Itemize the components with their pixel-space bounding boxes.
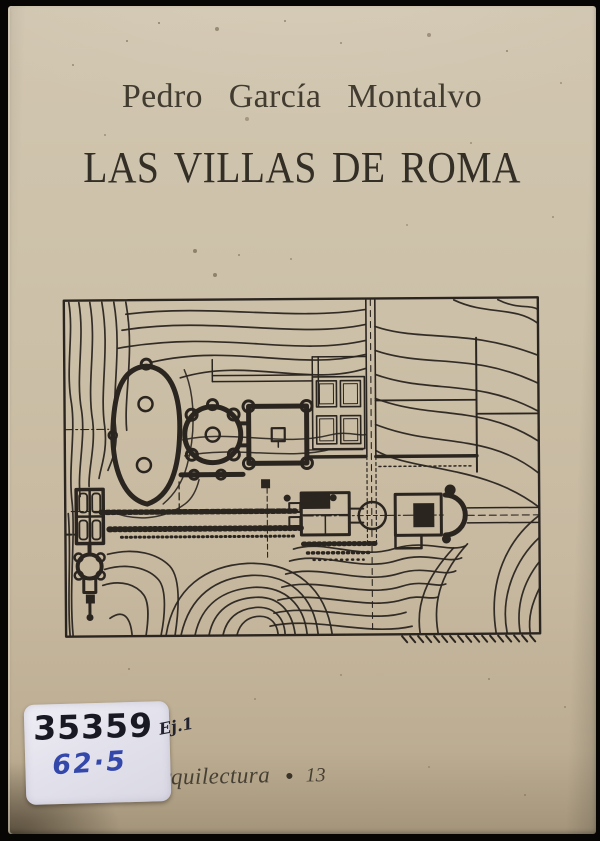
book-cover: Pedro García Montalvo LAS VILLAS DE ROMA <box>8 6 596 834</box>
series-number: 13 <box>305 764 325 787</box>
foxing-speckles <box>8 6 10 8</box>
accession-number: 35359 <box>33 708 153 744</box>
author-name: Pedro García Montalvo <box>8 78 596 115</box>
copy-mark: Ej.1 <box>157 714 195 739</box>
series-line: Arquilectura ● 13 <box>148 761 326 795</box>
shelf-mark: 62·5 <box>52 745 171 779</box>
book-title: LAS VILLAS DE ROMA <box>8 144 596 192</box>
site-plan-drawing <box>62 295 542 649</box>
book-cover-photo: Pedro García Montalvo LAS VILLAS DE ROMA <box>0 0 600 841</box>
book-title-text: LAS VILLAS DE ROMA <box>83 144 521 192</box>
library-label: 35359 Ej.1 62·5 <box>24 701 172 805</box>
library-label-row: 35359 Ej.1 <box>24 701 170 745</box>
bullet-icon: ● <box>285 769 294 785</box>
